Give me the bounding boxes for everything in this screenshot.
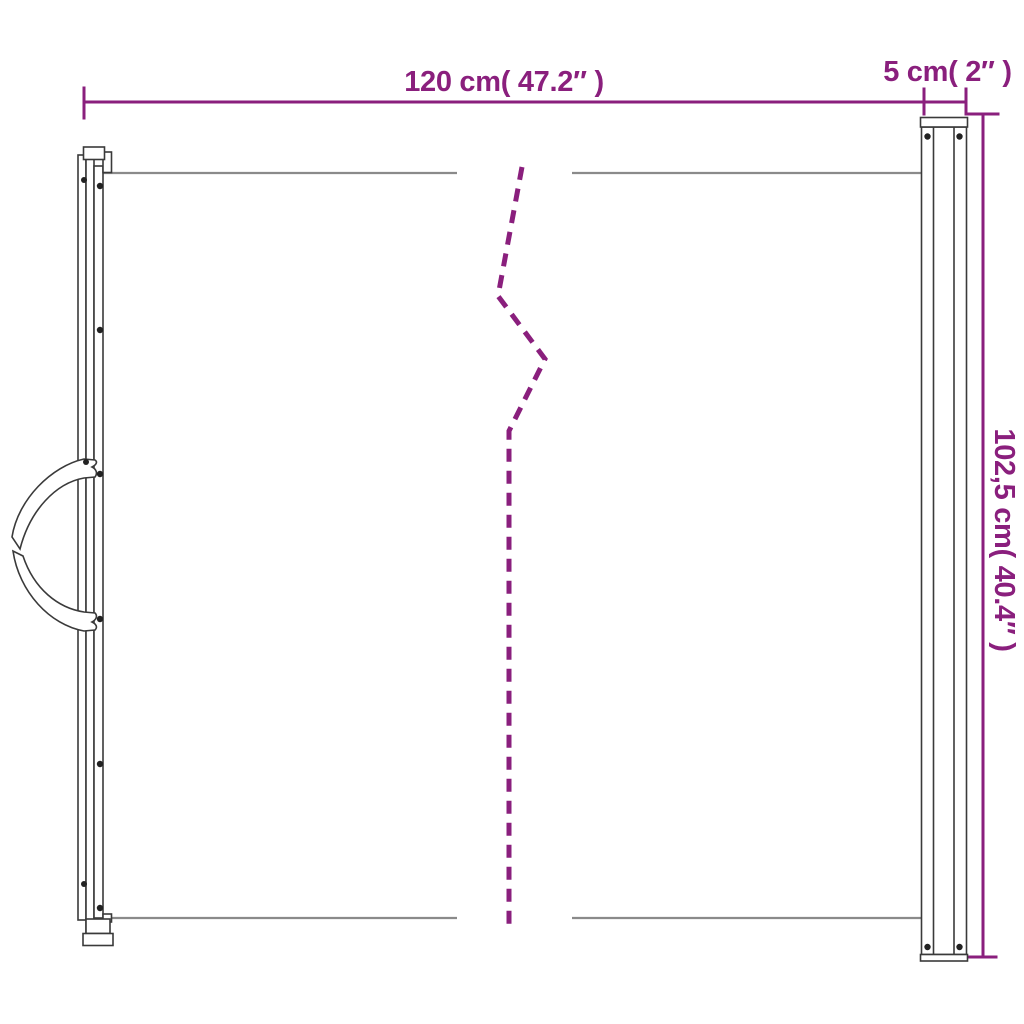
left-post-foot-stem — [86, 919, 110, 934]
cassette-bottom-cap — [921, 955, 968, 962]
diagram-canvas: 120 cm( 47.2″ ) 5 cm( 2″ ) 102,5 cm( 40.… — [0, 0, 1024, 1024]
right-cassette — [921, 118, 968, 962]
gate-diagram-drawing — [0, 0, 1024, 1024]
mesh-panel-edges — [103, 173, 921, 918]
left-post-main-bar — [86, 158, 94, 933]
cassette-body — [922, 127, 967, 955]
cassette-top-cap — [921, 118, 968, 128]
dashed-extension-line — [498, 167, 545, 925]
height-dimension-line — [968, 114, 998, 957]
handle-screw-top — [83, 459, 89, 465]
left-post-outer-rail — [78, 155, 86, 920]
left-post-top-cap — [84, 147, 105, 160]
left-post-foot — [83, 934, 113, 946]
left-post — [78, 147, 113, 946]
left-post-panel-edge — [94, 166, 103, 918]
top-dimension-line — [84, 88, 966, 118]
